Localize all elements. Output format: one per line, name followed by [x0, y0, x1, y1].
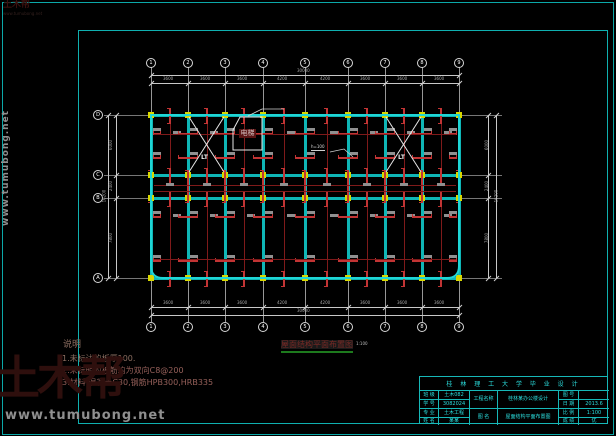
rebar-continuous-line [154, 191, 456, 192]
rebar-text-label [265, 211, 273, 214]
rebar-negative-bar [253, 216, 273, 218]
rebar-text-label [153, 128, 161, 131]
rebar-negative-bar [384, 170, 386, 203]
rebar-distribution-line [170, 120, 171, 170]
tb-right-label-0: 图 号 [558, 390, 578, 399]
rebar-negative-bar [206, 168, 208, 184]
rebar-negative-bar [169, 168, 171, 184]
rebar-negative-bar [262, 170, 264, 203]
rebar-distribution-line [170, 203, 171, 273]
rebar-negative-bar [178, 157, 198, 159]
tb-project-value: 桂林某办公楼设计 [497, 390, 558, 408]
rebar-distribution-line [327, 203, 328, 273]
rebar-negative-bar [304, 170, 306, 203]
tb-right-value-0 [578, 390, 609, 399]
title-block: 桂 林 理 工 大 学 毕 业 设 计 班 级 土木082 学 号 308202… [419, 376, 608, 424]
column [302, 275, 308, 281]
rebar-negative-bar [283, 168, 285, 184]
drawing-sheet-frame [78, 30, 608, 424]
rebar-negative-bar [253, 157, 273, 159]
column [419, 275, 425, 281]
rebar-negative-bar [295, 216, 315, 218]
dim-text: 3600 [237, 77, 247, 81]
rebar-text-label [350, 152, 358, 155]
grid-bubble-bottom: 1 [146, 322, 156, 332]
rebar-negative-bar [206, 108, 208, 124]
rebar-text-label [387, 128, 395, 131]
grid-bubble-left: D [93, 110, 103, 120]
rebar-text-label [449, 255, 457, 258]
dim-text: 3600 [200, 301, 210, 305]
dim-text: 3600 [434, 77, 444, 81]
grid-bubble-top: 4 [258, 58, 268, 68]
rebar-text-label [387, 255, 395, 258]
rebar-negative-bar [253, 260, 273, 262]
grid-bubble-top: 8 [417, 58, 427, 68]
rebar-negative-bar [326, 108, 328, 124]
rebar-text-label [424, 255, 432, 258]
rebar-negative-bar [403, 191, 405, 207]
rebar-text-label [363, 183, 371, 186]
watermark-url-bottom: www.tumubong.net [5, 408, 165, 423]
rebar-negative-bar [224, 170, 226, 203]
dim-text: 4200 [277, 77, 287, 81]
column [456, 275, 462, 281]
rebar-text-label [424, 152, 432, 155]
rebar-text-label [330, 214, 338, 217]
rebar-negative-bar [295, 157, 315, 159]
grid-bubble-bottom: 5 [300, 322, 310, 332]
column [382, 275, 388, 281]
dim-text: 7800 [485, 233, 489, 243]
column [148, 112, 154, 118]
rebar-distribution-line [244, 120, 245, 170]
rebar-negative-bar [440, 191, 442, 207]
caption-underline [281, 351, 353, 353]
dim-text: 16200 [102, 190, 106, 203]
dim-text: 3600 [163, 77, 173, 81]
rebar-negative-bar [153, 260, 161, 262]
rebar-negative-bar [206, 191, 208, 207]
rebar-text-label [449, 211, 457, 214]
column [419, 112, 425, 118]
tb-left-value-1: 3082024 [438, 399, 469, 408]
rebar-negative-bar [412, 216, 432, 218]
column [302, 112, 308, 118]
rebar-continuous-line [154, 134, 456, 135]
dim-text: 3600 [200, 77, 210, 81]
tb-project-label: 工程名称 [469, 390, 497, 408]
rebar-negative-bar [153, 157, 161, 159]
tb-drawing-value: 屋面结构平面布置图 [497, 408, 558, 425]
rebar-distribution-line [367, 120, 368, 170]
tb-left-label-2: 专 业 [420, 408, 438, 417]
rebar-distribution-line [367, 203, 368, 273]
dim-text: 16200 [494, 190, 498, 203]
dim-text: 3600 [397, 301, 407, 305]
rebar-negative-bar [412, 157, 432, 159]
rebar-negative-bar [375, 157, 395, 159]
rebar-text-label [265, 128, 273, 131]
rebar-negative-bar [375, 260, 395, 262]
rebar-negative-bar [449, 157, 457, 159]
column [185, 112, 191, 118]
rebar-text-label [153, 255, 161, 258]
rebar-negative-bar [366, 271, 368, 287]
rebar-continuous-line [154, 259, 456, 260]
watermark-url-small: www.tumubong.net [3, 11, 42, 16]
dim-text: 6000 [109, 140, 113, 150]
rebar-text-label [190, 128, 198, 131]
dim-text: 3600 [360, 301, 370, 305]
grid-bubble-bottom: 4 [258, 322, 268, 332]
column [222, 275, 228, 281]
rebar-text-label [387, 152, 395, 155]
rebar-text-label [350, 211, 358, 214]
column [148, 275, 154, 281]
rebar-text-label [227, 255, 235, 258]
rebar-text-label [437, 183, 445, 186]
column [345, 112, 351, 118]
rebar-negative-bar [215, 157, 235, 159]
rebar-negative-bar [366, 108, 368, 124]
watermark-logo-small: 土木帮 [3, 1, 30, 10]
tb-right-value-3: 优 [578, 417, 609, 425]
tb-left-value-0: 土木082 [438, 390, 469, 399]
grid-bubble-top: 2 [183, 58, 193, 68]
rebar-negative-bar [403, 271, 405, 287]
rebar-negative-bar [375, 216, 395, 218]
rebar-distribution-line [327, 120, 328, 170]
rebar-distribution-line [207, 203, 208, 273]
rebar-negative-bar [153, 216, 161, 218]
rebar-text-label [449, 152, 457, 155]
rebar-text-label [307, 128, 315, 131]
elevator-label: 电梯 [239, 129, 256, 138]
rebar-negative-bar [440, 168, 442, 184]
rebar-negative-bar [412, 260, 432, 262]
caption-scale: 1:100 [356, 341, 368, 346]
dim-text: 4200 [320, 77, 330, 81]
stair-label-left: LT [201, 155, 208, 161]
stair-label-right: LT [398, 155, 405, 161]
slab-annotation: h=100 [311, 145, 325, 151]
rebar-distribution-line [284, 120, 285, 170]
grid-bubble-bottom: 7 [380, 322, 390, 332]
column [185, 275, 191, 281]
rebar-negative-bar [440, 271, 442, 287]
rebar-text-label [449, 128, 457, 131]
dim-text: 4200 [277, 301, 287, 305]
grid-bubble-top: 7 [380, 58, 390, 68]
rebar-negative-bar [283, 191, 285, 207]
rebar-text-label [190, 152, 198, 155]
rebar-text-label [190, 211, 198, 214]
tb-left-value-3: 某某 [438, 417, 469, 425]
rebar-text-label [190, 255, 198, 258]
rebar-text-label [400, 183, 408, 186]
dim-text: 6000 [485, 140, 489, 150]
grid-bubble-bottom: 2 [183, 322, 193, 332]
grid-bubble-bottom: 6 [343, 322, 353, 332]
rebar-distribution-line [207, 120, 208, 170]
rebar-distribution-line [404, 120, 405, 170]
rebar-negative-bar [326, 191, 328, 207]
column [382, 112, 388, 118]
grid-bubble-left: C [93, 170, 103, 180]
tb-left-label-3: 姓 名 [420, 417, 438, 425]
rebar-negative-bar [243, 191, 245, 207]
rebar-text-label [307, 255, 315, 258]
rebar-text-label [265, 255, 273, 258]
title-block-header: 桂 林 理 工 大 学 毕 业 设 计 [420, 377, 607, 390]
rebar-negative-bar [243, 108, 245, 124]
rebar-text-label [307, 211, 315, 214]
dim-text: 3600 [397, 77, 407, 81]
rebar-text-label [350, 255, 358, 258]
column [222, 112, 228, 118]
grid-bubble-bottom: 9 [454, 322, 464, 332]
tb-right-label-1: 日 期 [558, 399, 578, 408]
rebar-distribution-line [441, 203, 442, 273]
tb-left-value-2: 土木工程 [438, 408, 469, 417]
rebar-text-label [227, 211, 235, 214]
column [456, 112, 462, 118]
rebar-text-label [280, 183, 288, 186]
rebar-negative-bar [215, 216, 235, 218]
dim-text: 30000 [297, 69, 310, 73]
column [260, 275, 266, 281]
dim-text: 4200 [320, 301, 330, 305]
rebar-text-label [153, 211, 161, 214]
rebar-text-label [307, 152, 315, 155]
rebar-negative-bar [178, 260, 198, 262]
dimension-line [151, 75, 459, 76]
grid-bubble-top: 3 [220, 58, 230, 68]
rebar-negative-bar [338, 260, 358, 262]
rebar-text-label [240, 183, 248, 186]
rebar-distribution-line [441, 120, 442, 170]
rebar-negative-bar [338, 216, 358, 218]
watermark-logo-large: 土木帮 [0, 342, 123, 408]
rebar-negative-bar [169, 191, 171, 207]
column [345, 275, 351, 281]
dim-text: 30000 [297, 309, 310, 313]
tb-right-value-2: 1:100 [578, 408, 609, 417]
rebar-distribution-line [244, 203, 245, 273]
rebar-text-label [387, 211, 395, 214]
grid-bubble-bottom: 8 [417, 322, 427, 332]
rebar-distribution-line [404, 203, 405, 273]
rebar-negative-bar [421, 170, 423, 203]
rebar-negative-bar [150, 170, 152, 203]
rebar-text-label [323, 183, 331, 186]
tb-drawing-label: 图 名 [469, 408, 497, 425]
rebar-negative-bar [187, 170, 189, 203]
rebar-text-label [227, 128, 235, 131]
rebar-negative-bar [366, 191, 368, 207]
watermark-url-vertical: www.tumubong.net [1, 110, 11, 226]
rebar-text-label [203, 183, 211, 186]
grid-bubble-top: 5 [300, 58, 310, 68]
rebar-negative-bar [338, 157, 358, 159]
rebar-negative-bar [215, 260, 235, 262]
grid-bubble-top: 9 [454, 58, 464, 68]
rebar-text-label [424, 211, 432, 214]
rebar-text-label [166, 183, 174, 186]
rebar-text-label [350, 128, 358, 131]
rebar-text-label [153, 152, 161, 155]
rebar-negative-bar [243, 271, 245, 287]
rebar-negative-bar [295, 260, 315, 262]
rebar-negative-bar [366, 168, 368, 184]
rebar-text-label [227, 152, 235, 155]
rebar-negative-bar [169, 108, 171, 124]
rebar-text-label [265, 152, 273, 155]
column [260, 112, 266, 118]
rebar-negative-bar [449, 216, 457, 218]
rebar-negative-bar [283, 108, 285, 124]
grid-bubble-top: 1 [146, 58, 156, 68]
rebar-negative-bar [440, 108, 442, 124]
rebar-negative-bar [449, 260, 457, 262]
rebar-negative-bar [206, 271, 208, 287]
tb-right-value-1: 2013.6 [578, 399, 609, 408]
rebar-text-label [287, 214, 295, 217]
rebar-negative-bar [243, 168, 245, 184]
dimension-line [151, 315, 459, 316]
dim-text: 3600 [163, 301, 173, 305]
dim-text: 3600 [237, 301, 247, 305]
dim-text: 7800 [109, 233, 113, 243]
rebar-negative-bar [283, 271, 285, 287]
rebar-negative-bar [347, 170, 349, 203]
cad-viewport: 土木帮 112233445566778899DCBA36003600360036… [0, 0, 616, 436]
rebar-negative-bar [326, 271, 328, 287]
drawing-caption: 屋面结构平面布置图 [281, 340, 353, 349]
grid-bubble-top: 6 [343, 58, 353, 68]
grid-bubble-bottom: 3 [220, 322, 230, 332]
tb-right-label-3: 成 绩 [558, 417, 578, 425]
grid-bubble-left: A [93, 273, 103, 283]
tb-left-label-1: 学 号 [420, 399, 438, 408]
dim-text: 3600 [434, 301, 444, 305]
dim-text: 2400 [485, 181, 489, 191]
tb-right-label-2: 比 例 [558, 408, 578, 417]
rebar-negative-bar [403, 168, 405, 184]
rebar-negative-bar [169, 271, 171, 287]
rebar-continuous-line [154, 185, 456, 186]
rebar-text-label [424, 128, 432, 131]
rebar-negative-bar [403, 108, 405, 124]
rebar-negative-bar [326, 168, 328, 184]
dim-text: 2400 [109, 181, 113, 191]
dim-text: 3600 [360, 77, 370, 81]
rebar-distribution-line [284, 203, 285, 273]
rebar-negative-bar [458, 170, 460, 203]
rebar-negative-bar [178, 216, 198, 218]
tb-left-label-0: 班 级 [420, 390, 438, 399]
